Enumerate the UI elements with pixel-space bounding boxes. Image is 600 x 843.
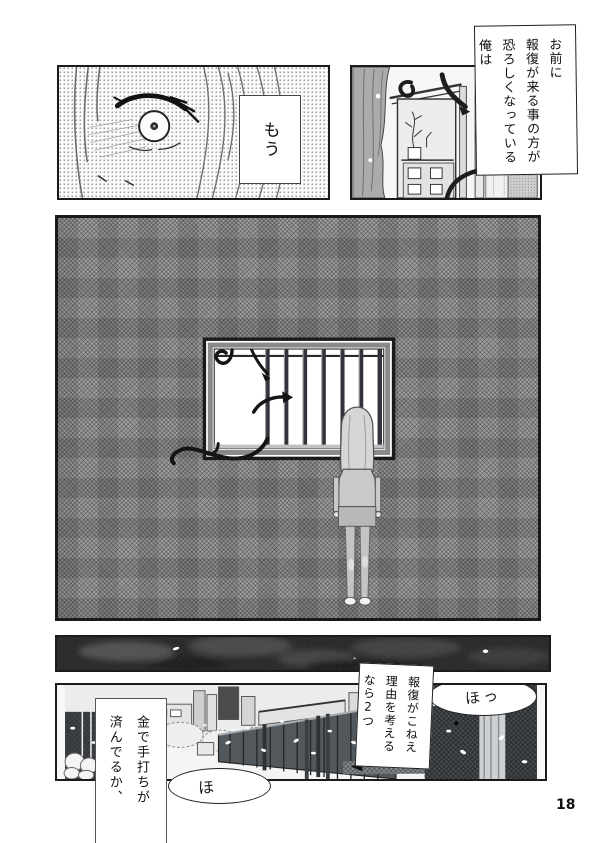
hair-strands-left	[75, 67, 100, 198]
caption-money-line: 金で手打ちが	[128, 715, 155, 843]
manga-page: もう	[0, 0, 600, 843]
panel-night-strip	[55, 635, 551, 672]
night-texture	[57, 637, 549, 670]
caption-fear-line: 恐ろしくなっている	[495, 38, 520, 166]
tick-marks	[98, 176, 134, 186]
balloon-ho-top-text: ほっ	[464, 684, 502, 709]
curtain	[353, 67, 390, 198]
building-outside	[403, 163, 453, 198]
balloon-ho-bottom: ほ	[168, 768, 271, 804]
caption-fear-line: 俺は	[472, 38, 497, 166]
shed	[197, 743, 213, 755]
eye-iris	[139, 111, 169, 141]
caption-fear: お前に 報復が来る事の方が 恐ろしくなっている 俺は	[474, 24, 578, 175]
figure-shoe	[344, 597, 356, 605]
caption-reason-line: 報復がこねえ	[399, 675, 425, 762]
balloon-ho-bottom-text: ほ	[198, 773, 216, 798]
panel-dark-room	[55, 215, 541, 621]
figure-hair	[340, 407, 373, 471]
figure-shoe	[359, 597, 371, 605]
wall-texture-piece	[508, 172, 537, 198]
caption-reason-line: なら2つ	[355, 673, 381, 760]
caption-money-line: 済んでるか、	[100, 715, 127, 843]
room-illustration	[58, 218, 538, 618]
caption-reason-line: 理由を考える	[377, 674, 403, 761]
caption-money: 金で手打ちが 済んでるか、	[95, 698, 167, 843]
figure-torso	[337, 469, 376, 506]
page-number: 18	[556, 797, 575, 813]
balloon-mou-text: もう	[258, 121, 283, 159]
caption-reason: 報復がこねえ 理由を考える なら2つ	[355, 662, 434, 769]
cheek-shading	[88, 119, 146, 157]
balloon-mou: もう	[239, 95, 301, 184]
under-eye-lines	[129, 143, 180, 151]
figure-shorts	[338, 507, 375, 527]
caption-fear-line: お前に	[542, 37, 567, 165]
caption-fear-line: 報復が来る事の方が	[518, 38, 543, 166]
